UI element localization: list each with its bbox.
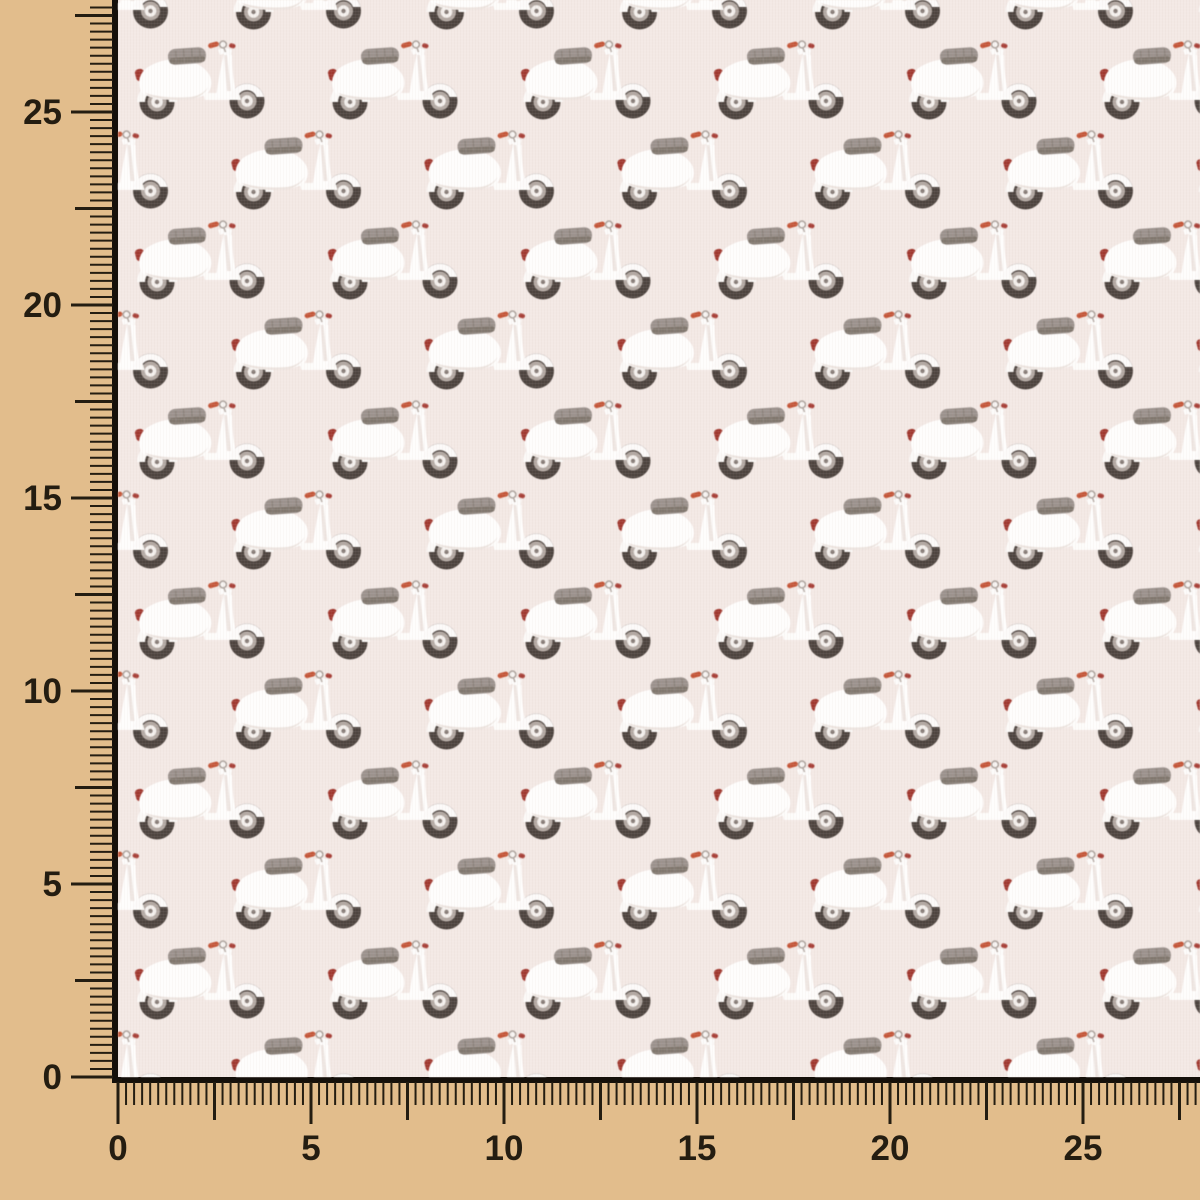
h-ruler-label: 20: [848, 1131, 932, 1166]
h-ruler-label: 25: [1041, 1131, 1125, 1166]
fabric-product-photo: 2520151050 0510152025: [0, 0, 1200, 1200]
h-ruler-label: 15: [655, 1131, 739, 1166]
h-ruler-label: 0: [76, 1131, 160, 1166]
h-ruler-label: 10: [462, 1131, 546, 1166]
h-ruler-label: 5: [269, 1131, 353, 1166]
v-ruler-label: 20: [0, 288, 62, 323]
v-ruler-label: 10: [0, 674, 62, 709]
v-ruler-label: 25: [0, 95, 62, 130]
fabric-swatch: [112, 0, 1200, 1083]
v-ruler-label: 0: [0, 1060, 62, 1095]
v-ruler-label: 5: [0, 867, 62, 902]
v-ruler-label: 15: [0, 481, 62, 516]
scooter-pattern-svg: [118, 0, 1200, 1077]
